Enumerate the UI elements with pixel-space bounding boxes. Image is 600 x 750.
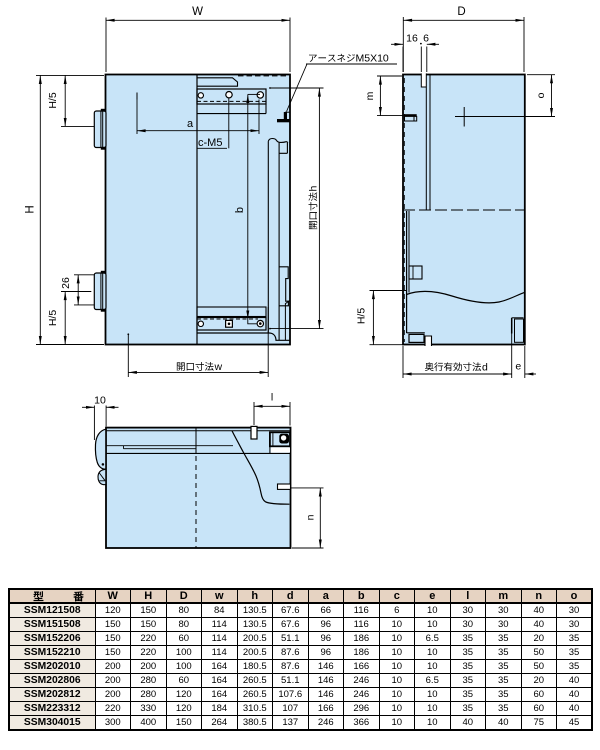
- svg-text:w: w: [214, 361, 223, 373]
- svg-text:H: H: [25, 205, 37, 213]
- svg-text:H/5: H/5: [47, 310, 59, 327]
- svg-text:H/5: H/5: [47, 92, 59, 109]
- svg-text:6: 6: [423, 33, 429, 45]
- svg-text:m: m: [364, 91, 376, 100]
- svg-text:b: b: [234, 207, 246, 213]
- svg-text:W: W: [192, 6, 203, 18]
- svg-text:a: a: [187, 118, 194, 130]
- svg-text:e: e: [515, 361, 521, 373]
- svg-text:n: n: [305, 514, 317, 520]
- svg-text:10: 10: [94, 395, 106, 407]
- svg-text:H/5: H/5: [356, 308, 368, 325]
- svg-text:o: o: [535, 92, 547, 98]
- svg-text:d: d: [482, 361, 488, 373]
- svg-text:D: D: [457, 6, 465, 18]
- svg-text:26: 26: [60, 277, 72, 289]
- svg-text:c-M5: c-M5: [198, 137, 222, 149]
- svg-text:M5X10: M5X10: [356, 53, 389, 65]
- svg-text:l: l: [271, 392, 273, 404]
- svg-text:16: 16: [406, 33, 418, 45]
- svg-text:h: h: [308, 186, 320, 192]
